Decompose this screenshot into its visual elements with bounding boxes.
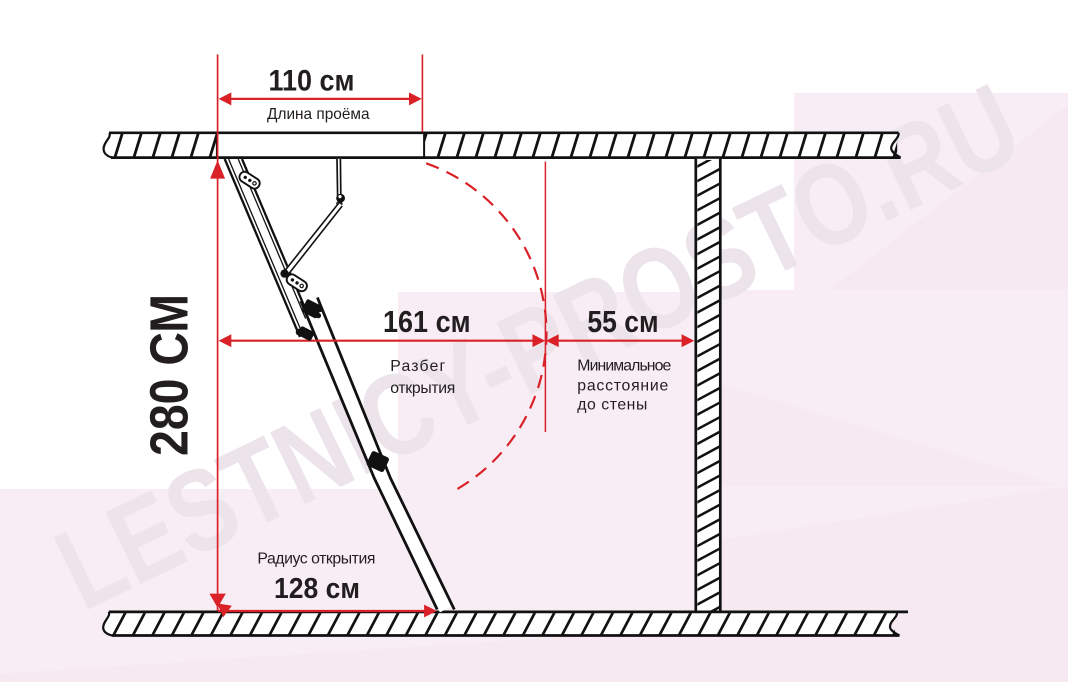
svg-text:до стены: до стены [577, 397, 647, 414]
svg-text:расстояние: расстояние [577, 377, 668, 394]
svg-text:55 см: 55 см [587, 304, 658, 339]
svg-text:открытия: открытия [390, 380, 455, 397]
svg-text:Длина проёма: Длина проёма [267, 106, 370, 123]
svg-text:Разбег: Разбег [390, 358, 445, 375]
svg-text:Радиус открытия: Радиус открытия [257, 551, 375, 568]
svg-text:Минимальное: Минимальное [577, 358, 671, 375]
svg-text:128 см: 128 см [274, 573, 360, 605]
svg-text:161 см: 161 см [383, 304, 471, 339]
svg-text:280 СМ: 280 СМ [140, 294, 200, 456]
svg-text:110 см: 110 см [269, 65, 355, 98]
